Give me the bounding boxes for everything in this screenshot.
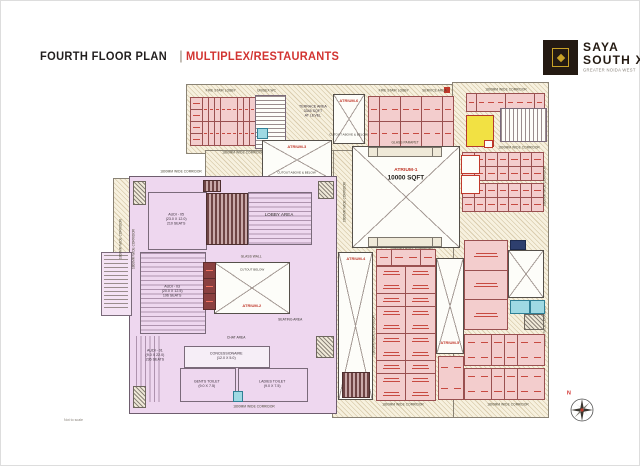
unit-cell [392, 250, 406, 265]
service-cell-cyan-top [257, 128, 268, 139]
unit-cell [226, 98, 231, 121]
unit-cell [421, 250, 435, 265]
audi-03-text: AUDI - 03 (20.0 X 12.5) 196 SEATS [142, 278, 202, 304]
rooms-right-mid [464, 240, 508, 330]
unit-cell [486, 94, 495, 111]
corridor-label-bottom-center: 1800MM WIDE CORRIDOR [368, 401, 438, 407]
unit-cell [486, 184, 497, 197]
service-area-label: SERVICE AREA [416, 87, 452, 93]
unit-cell [478, 384, 491, 399]
gents-toilet-text: GENTS TOILET (9.0 X 7.5) [181, 374, 233, 394]
unit-cell [377, 280, 406, 293]
unit-cell [518, 350, 531, 365]
unit-cell [221, 98, 226, 121]
gents-toilet-dims: (9.0 X 7.5) [194, 384, 220, 389]
terrace-area-text: TERRACE AREA 3345 SQFT AT LEVEL [292, 96, 334, 126]
unit-grid-below-atrium5 [438, 356, 464, 400]
floor-plan: FIRE STAIR LOBBY UNISEX WC 1800MM WIDE C… [0, 0, 640, 466]
unit-cell [478, 335, 491, 350]
atrium-1-area: 10000 SQFT [388, 174, 425, 181]
unit-cell [443, 122, 453, 146]
unit-cell [377, 374, 406, 387]
atrium-4-label: ATRIUM-4 [346, 256, 365, 261]
unit-cell [465, 384, 478, 399]
unit-cell [423, 238, 431, 246]
atrium-2-label: ATRIUM-2 [243, 303, 262, 308]
unit-cell [463, 198, 474, 211]
atrium-1: ATRIUM-1 10000 SQFT [352, 146, 460, 248]
unit-cell [465, 369, 478, 384]
stair-block-5 [133, 386, 146, 408]
unit-cell [203, 122, 208, 145]
unit-cell [406, 374, 435, 387]
unit-cell [518, 384, 531, 399]
unit-cell [492, 350, 505, 365]
unit-cell [465, 241, 507, 270]
audi-01-text: AUDI - 01 (9.0 X 22.0) 236 SEATS [132, 342, 178, 368]
unit-cell [406, 280, 435, 293]
corridor-label-right-top: 1800MM WIDE CORRIDOR [470, 86, 542, 92]
stair-block-4 [316, 336, 334, 358]
unit-cell [406, 347, 435, 360]
stair-block-right [524, 314, 544, 330]
unit-cell [521, 184, 532, 197]
unit-cell [232, 98, 237, 121]
unit-cell [238, 122, 243, 145]
atrium-2-note: CUTOUT BELOW [240, 268, 264, 271]
unit-cell [521, 167, 532, 180]
unit-cell [477, 94, 486, 111]
unit-cell [380, 97, 390, 121]
unit-cell [405, 148, 413, 156]
escalator-cluster [206, 193, 248, 245]
unit-cell [369, 148, 377, 156]
unit-cell [378, 238, 386, 246]
atrium-3: ATRIUM-3 CUTOUT ABOVE & BELOW [262, 140, 332, 180]
unit-cell [509, 153, 520, 166]
unit-cell [406, 250, 420, 265]
unit-cell [443, 97, 453, 121]
unit-cell [509, 184, 520, 197]
unit-cell [478, 369, 491, 384]
unit-cell [209, 122, 214, 145]
atrium-3-note: CUTOUT ABOVE & BELOW [278, 171, 316, 174]
unit-cell [433, 148, 441, 156]
unit-cell [191, 122, 202, 133]
unit-cell [387, 238, 395, 246]
unit-cell [439, 357, 451, 378]
audi-05-seats: 210 SEATS [166, 221, 187, 226]
unisex-wc-label: UNISEX WC [248, 87, 286, 93]
audi-01-seats: 236 SEATS [146, 357, 165, 362]
fire-stair-lobby-label-2: FIRE STAIR LOBBY [368, 87, 420, 93]
unit-cell [465, 271, 507, 300]
unit-cell [492, 335, 505, 350]
unit-cell [531, 335, 544, 350]
unit-cell [209, 98, 214, 121]
lift-cell-2 [461, 175, 480, 194]
unit-cell [423, 148, 431, 156]
concessionaire-text: CONCESSIONAIRE (12.0 X 5.0) [186, 347, 266, 365]
corridor-label-right-2: 1800MM WIDE CORRIDOR [492, 144, 546, 150]
unit-cell [475, 198, 486, 211]
corridor-label-multiplex-bottom: 1800MM WIDE CORRIDOR [208, 403, 300, 409]
unit-cell [521, 198, 532, 211]
glass-parapet-bottom [368, 237, 442, 247]
unit-cell [369, 238, 377, 246]
unit-cell [521, 153, 532, 166]
unit-cell [406, 387, 435, 400]
restaurant-top-row [376, 249, 436, 266]
unit-cell [433, 238, 441, 246]
unit-cell [221, 122, 226, 145]
ladies-toilet-dims: (9.0 X 7.5) [259, 384, 285, 389]
unit-cell [505, 350, 518, 365]
unit-cell [505, 384, 518, 399]
unit-cell [401, 97, 411, 121]
compass-north-label: N [567, 389, 571, 395]
audi-05-text: AUDI - 05 (23.0 X 12.0) 210 SEATS [150, 204, 203, 234]
glass-wall-label: GLASS WALL [224, 253, 278, 259]
unit-cell [377, 294, 406, 307]
unit-cell [531, 369, 544, 384]
unit-cell [406, 320, 435, 333]
unit-cell [486, 167, 497, 180]
unit-cell [377, 250, 391, 265]
unit-cell [406, 267, 435, 280]
unit-cell [203, 98, 208, 121]
unit-cell [387, 148, 395, 156]
unit-cell [492, 384, 505, 399]
stair-core-right [500, 108, 547, 142]
unit-cell [369, 97, 379, 121]
unit-cell [204, 263, 215, 278]
cutout-right [508, 250, 544, 298]
unit-cell [498, 184, 509, 197]
unit-cell [244, 122, 249, 145]
ladies-toilet-text: LADIES TOILET (9.0 X 7.5) [240, 374, 304, 394]
unit-cell [215, 98, 220, 121]
stair-block-2 [318, 181, 334, 199]
glass-parapet-top [368, 147, 442, 157]
fire-stair-lobby-label: FIRE STAIR LOBBY [192, 87, 250, 93]
unit-cell [204, 294, 215, 309]
lobby-area-label: LOBBY AREA [252, 210, 306, 218]
unit-cell [377, 320, 406, 333]
unit-cell [378, 148, 386, 156]
unit-cell [406, 294, 435, 307]
unit-cell [232, 122, 237, 145]
scale-note: Not to scale [64, 412, 104, 430]
unit-cell [465, 300, 507, 329]
concessionaire-dims: (12.0 X 5.0) [210, 356, 243, 361]
atrium-2: CUTOUT BELOW ATRIUM-2 [214, 262, 290, 314]
corridor-label-multiplex-left: 1800MM WIDE CORRIDOR [130, 214, 136, 284]
unit-cell [238, 98, 243, 121]
atrium-5-label: ATRIUM-5 [441, 340, 460, 345]
glass-parapet-label: GLASS PARAPET [378, 139, 432, 145]
corridor-label-sliver: 1800MM WIDE CORRIDOR [117, 206, 123, 272]
corridor-label-atrium-left: 1800MM WIDE CORRIDOR [341, 172, 347, 232]
atrium-6: ATRIUM-6 CUTOUT ABOVE & BELOW [333, 94, 365, 144]
unit-cell [215, 122, 220, 145]
service-cell-cyan-right-2 [530, 300, 545, 314]
seating-area-label: SEATING AREA [258, 316, 322, 322]
unit-cell [377, 387, 406, 400]
corridor-label-restaurant: 1800MM WIDE CORRIDOR [371, 300, 376, 370]
unit-cell [498, 153, 509, 166]
unit-grid-top-left [202, 97, 256, 146]
unit-cell [518, 369, 531, 384]
stair-block-1 [133, 181, 146, 205]
wing-stairs [104, 255, 128, 311]
corridor-label-right-vert: 1800MM WIDE CORRIDOR [541, 150, 547, 222]
unit-cell [451, 357, 463, 378]
corridor-label-multiplex-top: 1800MM WIDE CORRIDOR [146, 168, 216, 174]
unit-cell [406, 361, 435, 374]
corridor-label-bottom-right: 1800MM WIDE CORRIDOR [472, 401, 544, 407]
unit-cell [498, 198, 509, 211]
unit-grid-bottom-right-1 [464, 334, 545, 366]
unit-cell [411, 97, 421, 121]
unit-cell [405, 238, 413, 246]
lift-stack [203, 262, 216, 310]
unit-cell [465, 335, 478, 350]
service-cell-cyan-right-1 [510, 300, 530, 314]
unit-cell [414, 238, 422, 246]
unit-cell [518, 335, 531, 350]
unit-cell [422, 97, 432, 121]
unit-cell [505, 369, 518, 384]
unit-cell [377, 334, 406, 347]
unit-cell [432, 122, 442, 146]
unit-cell [492, 369, 505, 384]
unit-cell [509, 198, 520, 211]
unit-cell [191, 134, 202, 145]
unit-cell [478, 350, 491, 365]
escalator-bottom [342, 372, 370, 398]
unit-cell [467, 94, 476, 111]
service-cell-cyan-toilet [233, 391, 243, 402]
unit-cell [396, 148, 404, 156]
audi-03-seats: 196 SEATS [162, 293, 183, 298]
unit-cell [531, 350, 544, 365]
unit-cell [498, 167, 509, 180]
unit-cell [377, 361, 406, 374]
atrium-5: ATRIUM-5 [436, 258, 464, 354]
unit-cell [191, 110, 202, 121]
stair-block-3 [203, 180, 221, 192]
chat-area-label: CHAT AREA [206, 334, 266, 340]
compass-rose-icon [570, 398, 594, 422]
unit-cell [486, 153, 497, 166]
unit-cell [486, 198, 497, 211]
unit-cell [390, 97, 400, 121]
restaurant-col-right [405, 266, 436, 401]
unit-cell [204, 279, 215, 294]
terrace-line3: AT LEVEL [299, 113, 327, 118]
brochure-page: FOURTH FLOOR PLAN | MULTIPLEX/RESTAURANT… [0, 0, 640, 466]
unit-cell [509, 167, 520, 180]
unit-cell [244, 98, 249, 121]
unit-cell [406, 307, 435, 320]
unit-cell [432, 97, 442, 121]
atrium-3-label: ATRIUM-3 [288, 144, 307, 149]
unit-cell [377, 267, 406, 280]
unit-cell [377, 307, 406, 320]
unit-cell [439, 378, 451, 399]
unit-grid-bottom-right-2 [464, 368, 545, 400]
lobby-room [248, 192, 312, 245]
unit-cell [406, 334, 435, 347]
unit-cell [505, 335, 518, 350]
atrium-6-note: CUTOUT ABOVE & BELOW [330, 133, 368, 136]
unit-cell [451, 378, 463, 399]
unit-cell [191, 98, 202, 109]
unit-cell [396, 238, 404, 246]
unit-cell [226, 122, 231, 145]
service-cell-navy-right [510, 240, 526, 250]
atrium-6-label: ATRIUM-6 [340, 98, 359, 103]
unit-cell [414, 148, 422, 156]
unit-cell [531, 384, 544, 399]
atrium-1-label: ATRIUM-1 [394, 167, 417, 173]
unit-cell [377, 347, 406, 360]
restaurant-col-left [376, 266, 407, 401]
unit-cell [465, 350, 478, 365]
lift-cell-1 [461, 155, 480, 174]
